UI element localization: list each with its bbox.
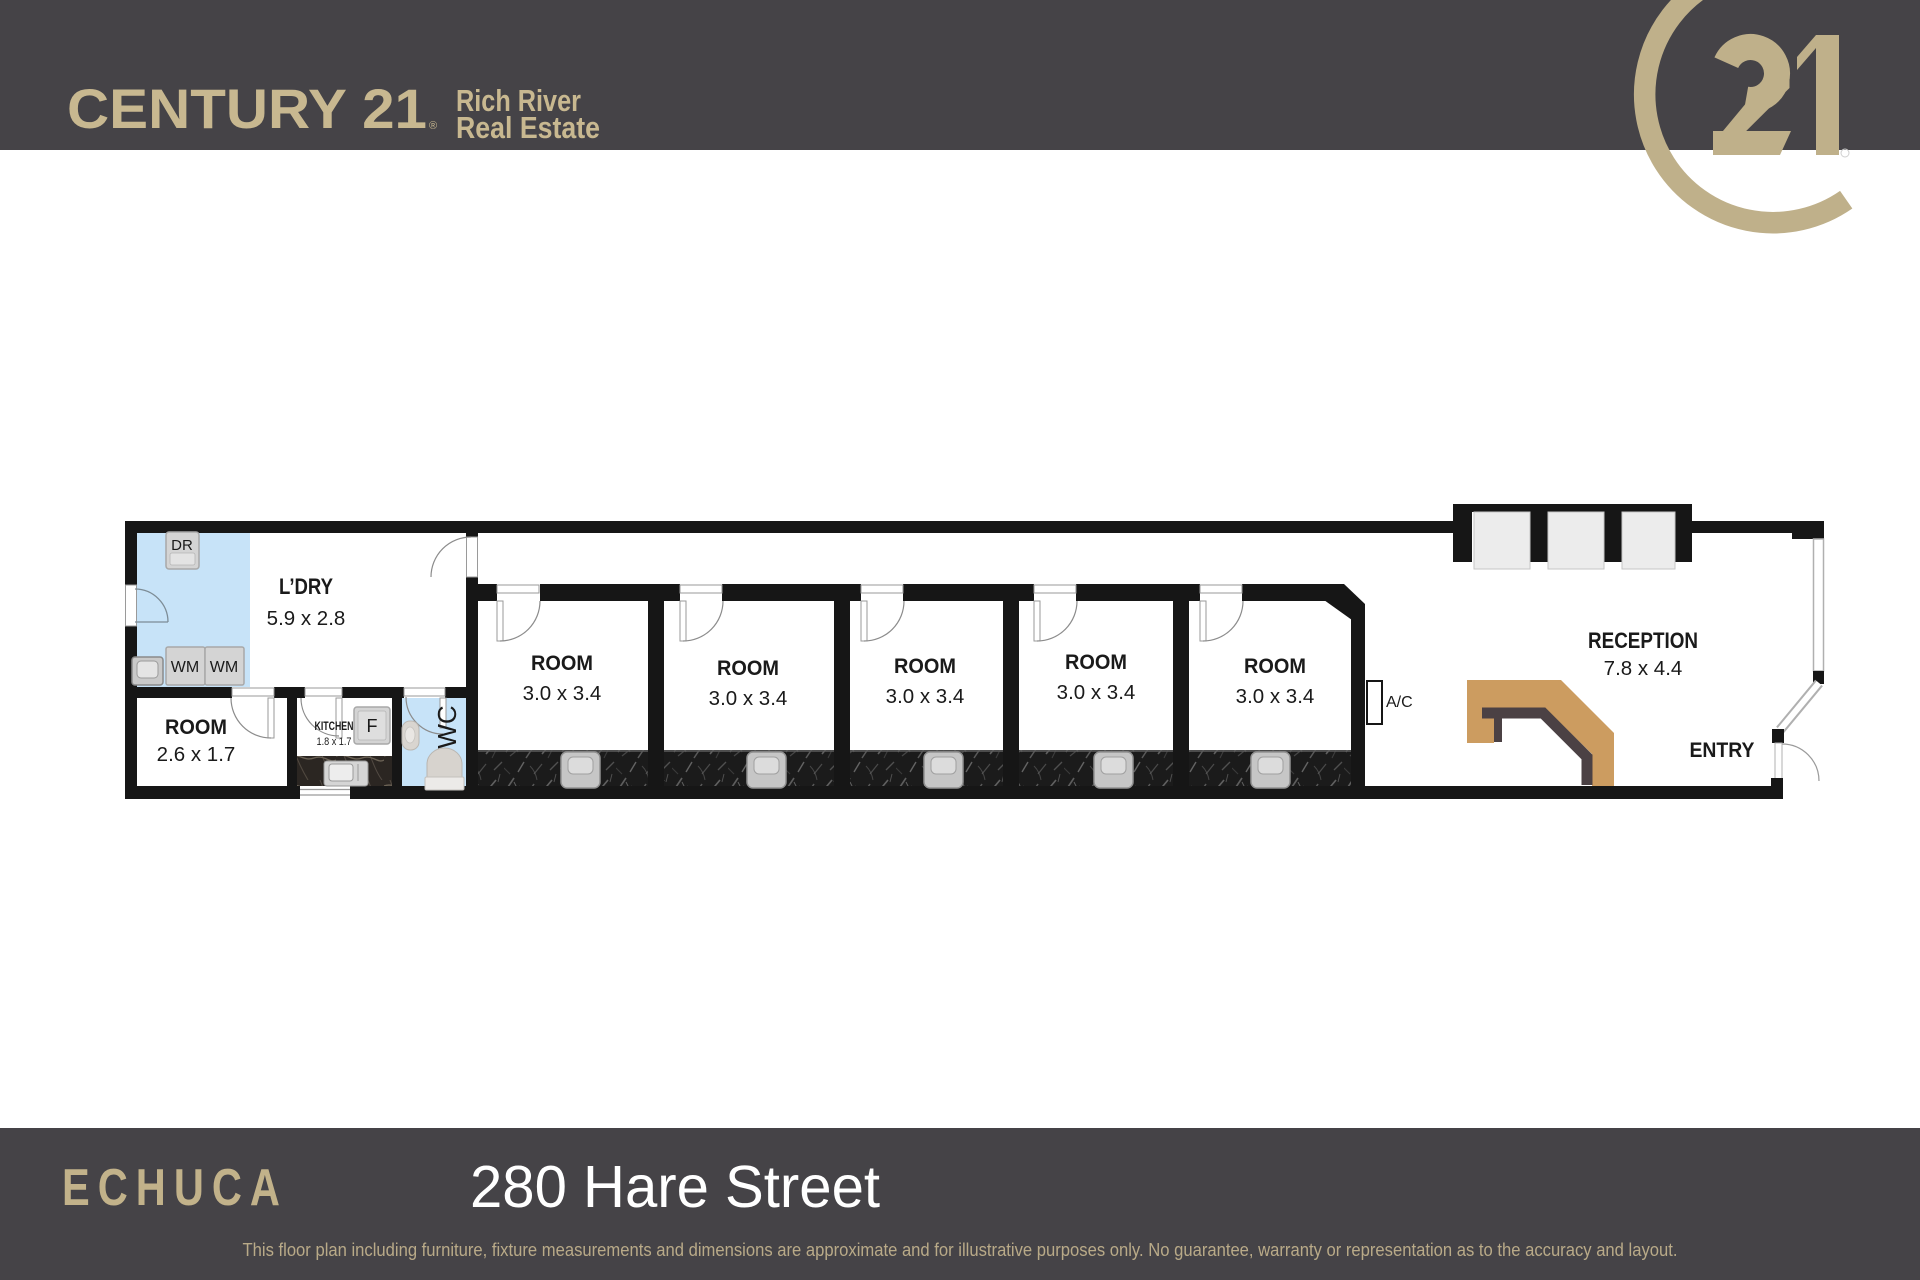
svg-text:3.0 x 3.4: 3.0 x 3.4 xyxy=(709,687,788,710)
svg-text:F: F xyxy=(367,716,378,736)
svg-text:ROOM: ROOM xyxy=(1244,654,1306,678)
svg-text:7.8 x 4.4: 7.8 x 4.4 xyxy=(1604,657,1683,680)
svg-text:5.9 x 2.8: 5.9 x 2.8 xyxy=(267,607,346,630)
svg-text:®: ® xyxy=(429,120,437,132)
svg-text:WM: WM xyxy=(171,659,199,676)
svg-text:3.0 x 3.4: 3.0 x 3.4 xyxy=(886,685,965,708)
svg-text:2.6 x 1.7: 2.6 x 1.7 xyxy=(157,743,236,766)
svg-text:KITCHEN: KITCHEN xyxy=(315,721,354,733)
svg-text:3.0 x 3.4: 3.0 x 3.4 xyxy=(523,682,602,705)
svg-text:DR: DR xyxy=(171,537,193,554)
svg-text:RECEPTION: RECEPTION xyxy=(1588,628,1698,653)
svg-text:3.0 x 3.4: 3.0 x 3.4 xyxy=(1236,685,1315,708)
svg-text:A/C: A/C xyxy=(1386,694,1413,711)
svg-text:This floor plan including furn: This floor plan including furniture, fix… xyxy=(243,1240,1678,1260)
svg-text:1.8 x 1.7: 1.8 x 1.7 xyxy=(317,736,352,748)
svg-text:Real Estate: Real Estate xyxy=(456,110,600,145)
svg-text:3.0 x 3.4: 3.0 x 3.4 xyxy=(1057,681,1136,704)
svg-text:280 Hare Street: 280 Hare Street xyxy=(470,1154,880,1220)
svg-text:ENTRY: ENTRY xyxy=(1690,738,1755,762)
svg-text:L’DRY: L’DRY xyxy=(279,574,333,599)
svg-text:CENTURY 21: CENTURY 21 xyxy=(67,77,427,140)
svg-text:ECHUCA: ECHUCA xyxy=(62,1158,288,1217)
svg-text:WC: WC xyxy=(432,705,462,748)
svg-text:WM: WM xyxy=(210,659,238,676)
svg-text:ROOM: ROOM xyxy=(894,654,956,678)
svg-text:ROOM: ROOM xyxy=(1065,650,1127,674)
svg-text:ROOM: ROOM xyxy=(717,656,779,680)
svg-text:ROOM: ROOM xyxy=(531,651,593,675)
svg-text:ROOM: ROOM xyxy=(165,715,227,739)
